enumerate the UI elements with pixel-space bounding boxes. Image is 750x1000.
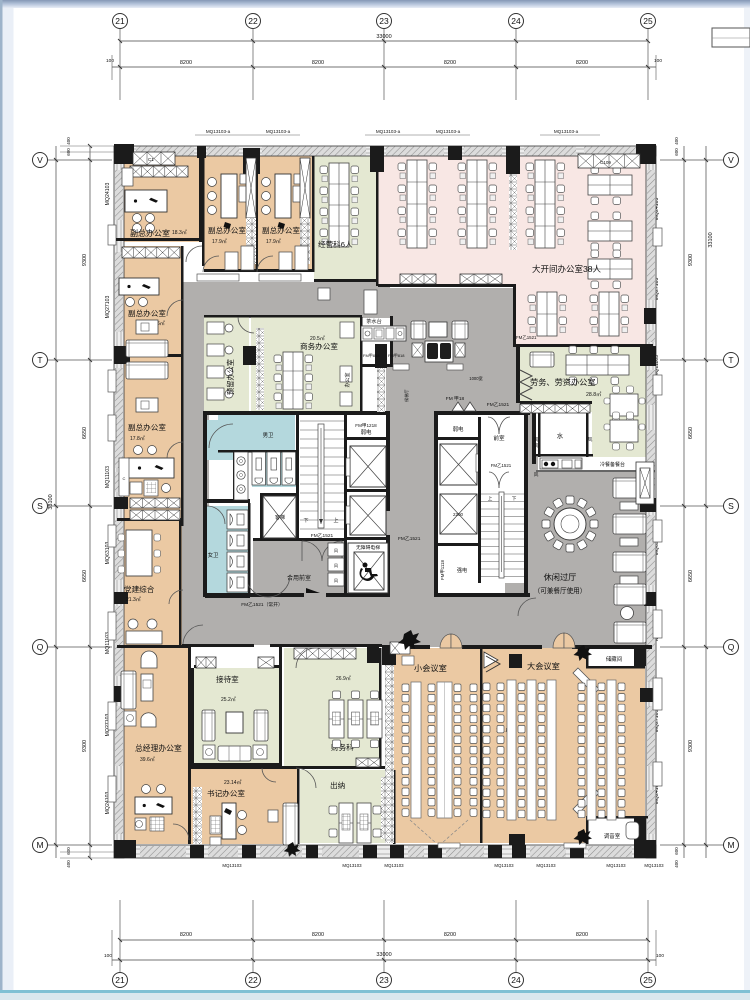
svg-text:MQ13103: MQ13103 bbox=[384, 863, 404, 868]
svg-text:M: M bbox=[36, 840, 43, 850]
svg-text:副总办公室: 副总办公室 bbox=[208, 225, 246, 235]
svg-text:无障碍电梯: 无障碍电梯 bbox=[356, 544, 380, 551]
svg-text:8200: 8200 bbox=[576, 60, 588, 66]
svg-text:6650: 6650 bbox=[82, 427, 88, 439]
svg-text:书记办公室: 书记办公室 bbox=[207, 788, 245, 798]
svg-text:MQ13103-a: MQ13103-a bbox=[376, 129, 401, 134]
svg-text:100: 100 bbox=[654, 58, 662, 64]
svg-text:V: V bbox=[37, 155, 43, 165]
svg-text:1000宽: 1000宽 bbox=[469, 375, 483, 382]
svg-text:17.9㎡: 17.9㎡ bbox=[266, 238, 281, 245]
svg-text:副总办公室: 副总办公室 bbox=[128, 422, 166, 432]
svg-text:21: 21 bbox=[115, 16, 125, 26]
svg-text:9300: 9300 bbox=[688, 740, 694, 752]
svg-text:2200: 2200 bbox=[453, 512, 464, 517]
svg-text:8200: 8200 bbox=[180, 60, 192, 66]
svg-text:储藏间: 储藏间 bbox=[606, 655, 622, 663]
svg-text:预留办公室: 预留办公室 bbox=[226, 359, 235, 395]
svg-text:8200: 8200 bbox=[576, 932, 588, 938]
svg-text:33000: 33000 bbox=[376, 952, 391, 958]
svg-text:FM乙1521: FM乙1521 bbox=[491, 462, 512, 468]
svg-text:21: 21 bbox=[115, 975, 125, 985]
svg-text:S: S bbox=[37, 501, 43, 511]
svg-text:冷餐备餐台: 冷餐备餐台 bbox=[600, 461, 625, 468]
svg-text:9300: 9300 bbox=[82, 254, 88, 266]
svg-text:MQ13103-a: MQ13103-a bbox=[436, 129, 461, 134]
svg-text:100: 100 bbox=[106, 58, 114, 64]
svg-text:弱电: 弱电 bbox=[453, 425, 464, 433]
svg-text:9300: 9300 bbox=[82, 740, 88, 752]
svg-text:18.3㎡: 18.3㎡ bbox=[172, 229, 187, 236]
svg-text:小会议室: 小会议室 bbox=[414, 663, 447, 673]
svg-text:大会议室: 大会议室 bbox=[527, 661, 560, 671]
svg-text:女卫: 女卫 bbox=[208, 551, 219, 559]
svg-text:总经理办公室: 总经理办公室 bbox=[135, 743, 182, 753]
svg-text:FM乙1521（常开）: FM乙1521（常开） bbox=[241, 601, 283, 608]
svg-text:上: 上 bbox=[333, 517, 338, 524]
svg-text:副总办公室: 副总办公室 bbox=[262, 225, 300, 235]
svg-text:接待室: 接待室 bbox=[216, 674, 239, 684]
svg-text:33100: 33100 bbox=[708, 232, 714, 247]
svg-text:FM乙1521: FM乙1521 bbox=[311, 532, 334, 539]
svg-text:商务办公室: 商务办公室 bbox=[300, 341, 338, 351]
svg-text:MQ13103: MQ13103 bbox=[494, 863, 514, 868]
svg-text:Q: Q bbox=[728, 642, 735, 652]
svg-text:24: 24 bbox=[511, 16, 521, 26]
svg-text:23: 23 bbox=[379, 975, 389, 985]
svg-text:600: 600 bbox=[674, 148, 679, 156]
svg-text:6650: 6650 bbox=[688, 427, 694, 439]
svg-text:MQ27103: MQ27103 bbox=[105, 296, 111, 319]
svg-text:25: 25 bbox=[643, 16, 653, 26]
svg-text:M: M bbox=[727, 840, 734, 850]
svg-text:MQ11103: MQ11103 bbox=[105, 466, 111, 488]
svg-text:8200: 8200 bbox=[444, 60, 456, 66]
svg-text:客梯: 客梯 bbox=[275, 514, 285, 521]
svg-text:23.14㎡: 23.14㎡ bbox=[224, 779, 242, 786]
svg-text:100: 100 bbox=[104, 953, 112, 959]
svg-text:26.9㎡: 26.9㎡ bbox=[336, 675, 351, 682]
svg-text:Q: Q bbox=[37, 642, 44, 652]
svg-text:600: 600 bbox=[66, 847, 71, 855]
svg-text:20.5㎡: 20.5㎡ bbox=[310, 335, 325, 342]
svg-text:办公室: 办公室 bbox=[344, 372, 351, 387]
svg-text:副总办公室: 副总办公室 bbox=[130, 228, 170, 238]
svg-text:FM甲818: FM甲818 bbox=[388, 353, 405, 358]
svg-text:FM乙1521: FM乙1521 bbox=[398, 535, 421, 542]
svg-text:男卫: 男卫 bbox=[263, 432, 274, 439]
svg-text:T: T bbox=[728, 355, 733, 365]
svg-text:调音室: 调音室 bbox=[604, 832, 621, 840]
svg-text:9300: 9300 bbox=[688, 254, 694, 266]
svg-text:6650: 6650 bbox=[688, 570, 694, 582]
svg-text:上: 上 bbox=[488, 495, 493, 501]
svg-text:17.8㎡: 17.8㎡ bbox=[130, 435, 145, 442]
svg-text:休闲过厅: 休闲过厅 bbox=[544, 572, 577, 582]
svg-text:大开间办公室38人: 大开间办公室38人 bbox=[532, 264, 601, 274]
svg-text:T: T bbox=[37, 355, 42, 365]
svg-text:C: C bbox=[123, 476, 126, 481]
svg-text:24: 24 bbox=[511, 975, 521, 985]
svg-text:28.8㎡: 28.8㎡ bbox=[586, 390, 602, 398]
svg-text:MQ13103-a: MQ13103-a bbox=[206, 129, 231, 134]
svg-text:水: 水 bbox=[557, 431, 564, 440]
svg-text:8200: 8200 bbox=[312, 932, 324, 938]
svg-text:前室: 前室 bbox=[493, 434, 505, 442]
svg-text:S: S bbox=[728, 501, 734, 511]
svg-text:FM乙1521: FM乙1521 bbox=[516, 334, 537, 340]
svg-text:MQ13103: MQ13103 bbox=[606, 863, 626, 868]
svg-text:茶水台: 茶水台 bbox=[366, 317, 382, 325]
svg-text:22: 22 bbox=[248, 16, 258, 26]
svg-text:600: 600 bbox=[674, 847, 679, 855]
svg-text:400: 400 bbox=[66, 137, 71, 145]
svg-text:25: 25 bbox=[643, 975, 653, 985]
svg-text:经营科6人: 经营科6人 bbox=[318, 239, 353, 249]
svg-text:MQ13103-a: MQ13103-a bbox=[554, 129, 579, 134]
svg-text:17.9㎡: 17.9㎡ bbox=[212, 238, 227, 245]
svg-text:MQ13103: MQ13103 bbox=[342, 863, 362, 868]
svg-text:400: 400 bbox=[66, 860, 71, 868]
svg-text:100: 100 bbox=[656, 953, 664, 959]
svg-text:6650: 6650 bbox=[82, 570, 88, 582]
svg-text:39.6㎡: 39.6㎡ bbox=[140, 756, 155, 763]
svg-text:FM 甲18: FM 甲18 bbox=[446, 396, 465, 402]
svg-text:MQ13103: MQ13103 bbox=[536, 863, 556, 868]
svg-text:MQ13103: MQ13103 bbox=[644, 863, 664, 868]
svg-text:8200: 8200 bbox=[180, 932, 192, 938]
svg-text:C1: C1 bbox=[148, 157, 154, 162]
svg-text:MQ13103-a: MQ13103-a bbox=[266, 129, 291, 134]
svg-text:V: V bbox=[728, 155, 734, 165]
svg-text:23: 23 bbox=[379, 16, 389, 26]
svg-text:22: 22 bbox=[248, 975, 258, 985]
svg-text:候梯厅: 候梯厅 bbox=[403, 389, 410, 402]
svg-text:33100: 33100 bbox=[48, 494, 54, 509]
svg-text:副总办公室: 副总办公室 bbox=[128, 308, 166, 318]
svg-text:FM乙1521: FM乙1521 bbox=[487, 401, 510, 408]
svg-text:C109: C109 bbox=[600, 160, 611, 165]
svg-text:33000: 33000 bbox=[376, 34, 391, 40]
svg-text:强电: 强电 bbox=[457, 566, 467, 574]
svg-text:弱电: 弱电 bbox=[361, 428, 372, 436]
svg-text:党建综合: 党建综合 bbox=[124, 584, 155, 594]
svg-text:（可兼餐厅使用）: （可兼餐厅使用） bbox=[534, 586, 587, 595]
svg-text:8200: 8200 bbox=[312, 60, 324, 66]
svg-text:FM甲818: FM甲818 bbox=[363, 353, 380, 358]
svg-text:MQ13103: MQ13103 bbox=[222, 863, 242, 868]
svg-text:25.2㎡: 25.2㎡ bbox=[221, 696, 236, 703]
svg-text:劳务、劳资办公室: 劳务、劳资办公室 bbox=[530, 377, 596, 387]
svg-text:MQ24103: MQ24103 bbox=[105, 183, 111, 206]
svg-text:合用前室: 合用前室 bbox=[287, 574, 311, 582]
svg-text:出纳: 出纳 bbox=[330, 780, 345, 790]
svg-text:400: 400 bbox=[674, 137, 679, 145]
svg-text:8200: 8200 bbox=[444, 932, 456, 938]
svg-text:下: 下 bbox=[303, 518, 308, 524]
svg-text:400: 400 bbox=[674, 860, 679, 868]
svg-text:21.3㎡: 21.3㎡ bbox=[126, 596, 141, 603]
